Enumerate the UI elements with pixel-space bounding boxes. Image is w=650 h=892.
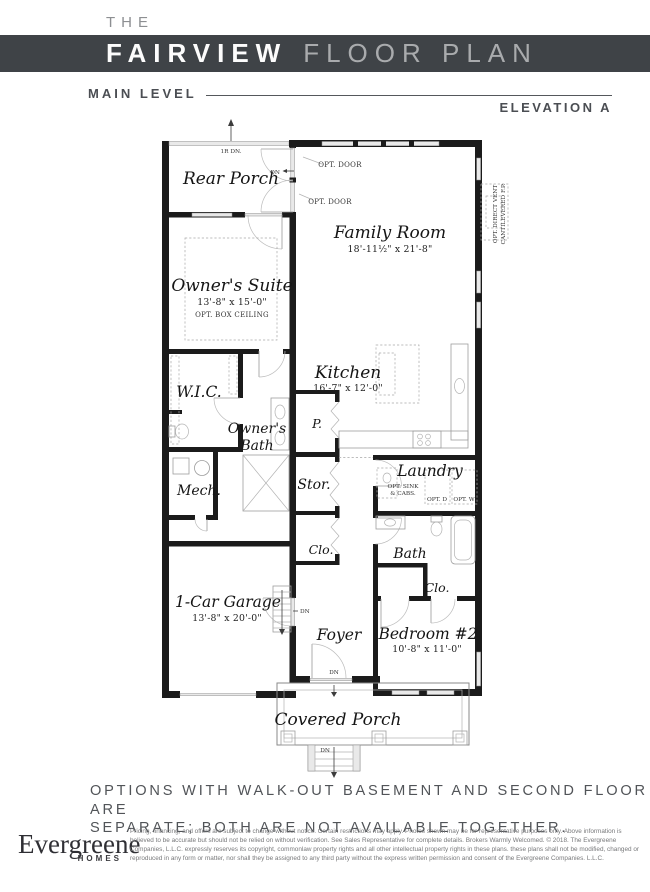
floor-plan-sheet: THE FAIRVIEW FLOOR PLAN MAIN LEVEL ELEVA… [0,0,650,892]
room-label-laundry: Laundry [396,462,463,480]
room-label-owners-suite: Owner's Suite [171,276,292,296]
dn-garage-stairs: DN [300,609,310,615]
options-note-line1: OPTIONS WITH WALK-OUT BASEMENT AND SECON… [90,782,650,819]
note-fireplace-line1: OPT. DIRECT VENT [493,185,499,244]
note-box-ceiling: OPT. BOX CEILING [195,311,269,319]
dn-porch-steps: DN [320,748,330,754]
room-label-family-room: Family Room [333,223,446,243]
dn-porch-door: DN [270,170,280,176]
dims-family-room: 18'-11½" x 21'-8" [348,244,433,255]
brand-logo: Evergreene HOMES [18,831,124,863]
plan-title: FAIRVIEW [106,38,287,69]
note-rear-steps: 1R DN. [220,149,241,155]
dims-garage: 13'-8" x 20'-0" [192,613,262,624]
room-label-bedroom2: Bedroom #2 [377,625,477,643]
note-opt-dryer: OPT. D [427,497,447,503]
title-bar: FAIRVIEW FLOOR PLAN [0,35,650,72]
floor-plan-drawing: Rear Porch 1R DN. DN OPT. DOOR OPT. DOOR… [130,115,650,780]
room-label-garage: 1-Car Garage [175,593,281,611]
room-label-foyer: Foyer [316,626,363,644]
room-label-covered-porch: Covered Porch [275,710,402,730]
dn-front-door: DN [329,670,339,676]
dims-bedroom2: 10'-8" x 11'-0" [392,644,462,655]
dims-owners-suite: 13'-8" x 15'-0" [197,297,267,308]
room-label-storage: Stor. [297,477,330,493]
room-label-kitchen: Kitchen [314,363,381,383]
note-fireplace-line2: CANTILEVERED F.P. [501,183,507,244]
level-rule-line [206,95,612,96]
room-label-closet-hall: Clo. [309,542,334,557]
room-label-bath: Bath [392,546,426,562]
plan-series-label: THE [106,14,154,31]
room-label-closet-bedroom: Clo. [425,580,450,595]
room-label-owners-bath-1: Owner's [228,421,287,437]
note-opt-sink-1: OPT. SINK [387,484,419,490]
room-label-rear-porch: Rear Porch [182,169,279,189]
room-label-owners-bath-2: Bath [239,438,273,454]
dims-kitchen: 16'-7" x 12'-0" [313,383,383,394]
note-opt-sink-2: & CABS. [390,491,416,497]
elevation-label: ELEVATION A [500,100,612,115]
covered-porch-structure [277,683,469,778]
legal-disclaimer: Pricing, financing, and offers are subje… [130,827,642,863]
room-label-wic: W.I.C. [176,383,221,401]
note-fireplace: OPT. DIRECT VENT CANTILEVERED F.P. [493,183,507,244]
level-label: MAIN LEVEL [88,86,197,101]
room-label-pantry: P. [311,416,322,431]
note-opt-washer: OPT. W [453,497,474,503]
plan-title-suffix: FLOOR PLAN [303,38,538,69]
note-opt-door-2: OPT. DOOR [308,198,352,206]
room-label-mech: Mech. [176,483,221,499]
note-opt-door-1: OPT. DOOR [318,161,362,169]
